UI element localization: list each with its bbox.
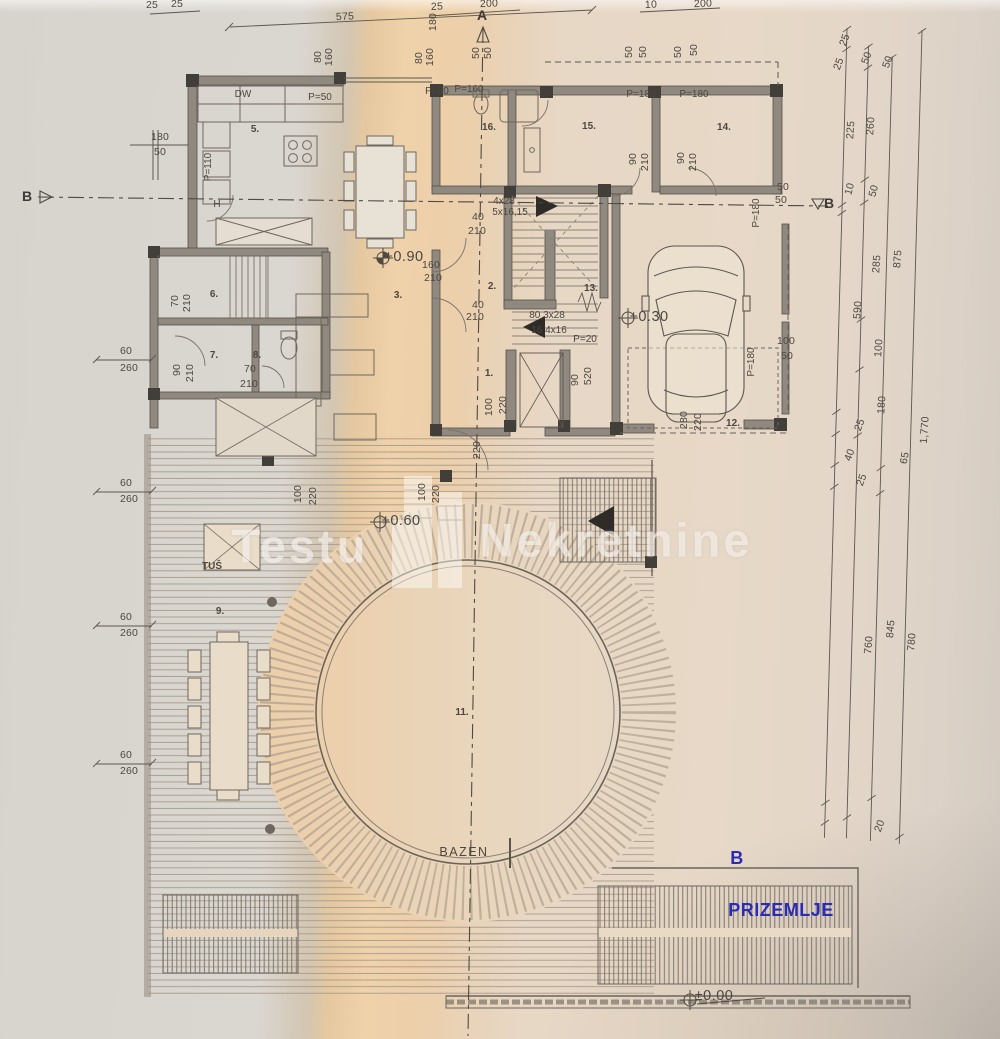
section-marker-b-right: B — [824, 196, 834, 210]
dim-label: 50 — [638, 46, 649, 58]
dim-label: 20 — [873, 819, 887, 834]
room-label: 1. — [485, 369, 493, 379]
dim-label: 70 — [244, 364, 256, 375]
dim-label: 25 — [853, 418, 867, 433]
dim-label: 80 — [414, 52, 425, 64]
dim-label: 90 — [172, 364, 183, 376]
dim-label: 260 — [120, 766, 138, 777]
dim-label: 25 — [855, 473, 869, 488]
room-label: 6. — [210, 290, 218, 300]
dim-label: 100 — [417, 483, 428, 501]
dim-label: 10 — [645, 0, 657, 10]
floorplan-photo: Testu Nekretnine A B B BAZEN B PRIZEMLJE… — [0, 0, 1000, 1039]
dim-label: 210 — [466, 312, 484, 323]
opening-label: P=180 — [679, 90, 708, 100]
dim-label: 220 — [431, 485, 442, 503]
room-label: 8. — [253, 351, 261, 361]
dim-label: 180 — [876, 396, 888, 415]
dim-label: 210 — [640, 153, 651, 171]
room-label: 2. — [488, 282, 496, 292]
watermark-right-word: Nekretnine — [480, 517, 753, 564]
level-label: +0.30 — [629, 310, 668, 325]
opening-label: H — [213, 200, 220, 210]
dim-label: 50 — [777, 182, 789, 193]
floor-title: PRIZEMLJE — [728, 901, 834, 919]
dim-label: 50 — [483, 47, 494, 59]
dim-label: 160 — [422, 260, 440, 271]
dim-label: 100 — [484, 398, 495, 416]
dim-label: 90 — [628, 153, 639, 165]
room-label: 11. — [455, 708, 468, 718]
dim-label: 60 — [120, 478, 132, 489]
pool-label: BAZEN — [439, 846, 488, 859]
dim-label: 210 — [240, 379, 258, 390]
dim-label: 25 — [171, 0, 183, 9]
room-label: 13. — [584, 284, 598, 294]
dim-label: 210 — [688, 153, 699, 171]
room-label: 12. — [726, 419, 740, 429]
dim-label: 220 — [308, 487, 319, 505]
dim-label: 25 — [431, 2, 443, 13]
dim-label: 65 — [899, 451, 911, 465]
dim-label: 160 — [425, 48, 436, 66]
dim-label: 760 — [863, 636, 875, 655]
dim-label: 780 — [906, 633, 918, 652]
section-marker-a: A — [477, 8, 487, 22]
stair-label: 4x28 — [493, 197, 515, 207]
section-marker-b-left: B — [22, 189, 32, 203]
opening-label: P=180 — [626, 90, 655, 100]
opening-label: P=110 — [204, 153, 214, 181]
dim-label: 1,770 — [919, 416, 931, 444]
dim-label: 50 — [689, 44, 700, 56]
dim-label: 220 — [498, 396, 509, 414]
dim-label: 200 — [694, 0, 712, 10]
dim-label: 60 — [120, 612, 132, 623]
dim-label: 590 — [852, 301, 864, 320]
dim-label: 50 — [471, 47, 482, 59]
level-label: +0.90 — [384, 250, 423, 265]
dim-label: 25 — [838, 33, 852, 48]
room-label: TUŠ — [202, 562, 222, 572]
stair-label: 5x16,15 — [492, 208, 528, 218]
room-label: 15. — [582, 122, 596, 132]
dim-label: 210 — [468, 226, 486, 237]
dim-label: 875 — [892, 250, 904, 269]
dim-label: 90 — [570, 374, 581, 386]
dim-label: 25 — [832, 57, 846, 72]
dim-label: 200 — [480, 0, 498, 10]
label-layer: Testu Nekretnine A B B BAZEN B PRIZEMLJE… — [0, 0, 1000, 1039]
dim-label: 280 — [679, 411, 690, 429]
dim-label: 220 — [693, 413, 704, 431]
opening-label: DW — [235, 90, 252, 100]
room-label: 14. — [717, 123, 731, 133]
dim-label: 25 — [146, 0, 158, 10]
room-label: 7. — [210, 351, 218, 361]
dim-label: 40 — [843, 448, 857, 463]
opening-label: P=180 — [752, 198, 762, 227]
dim-label: 210 — [182, 294, 193, 312]
dim-label: 575 — [336, 11, 354, 22]
dim-label: 50 — [881, 55, 895, 70]
opening-label: P=50 — [425, 87, 449, 97]
dim-label: 50 — [673, 46, 684, 58]
level-label: ±0.00 — [695, 989, 734, 1004]
dim-label: 50 — [624, 46, 635, 58]
dim-label: 80 — [313, 51, 324, 63]
dim-label: 285 — [871, 255, 883, 274]
dim-label: 260 — [120, 363, 138, 374]
level-label: +0.60 — [381, 514, 420, 529]
room-label: 5. — [251, 125, 259, 135]
dim-label: 225 — [845, 121, 857, 140]
dim-label: 10 — [843, 182, 856, 196]
dim-label: 520 — [583, 367, 594, 385]
dim-label: 50 — [860, 51, 874, 66]
dim-label: 210 — [424, 273, 442, 284]
dim-label: 100 — [873, 339, 885, 358]
opening-label: P=50 — [308, 93, 332, 103]
dim-label: 90 — [676, 152, 687, 164]
room-label: 3. — [394, 291, 402, 301]
room-label: 16. — [482, 123, 496, 133]
dim-label: 160 — [324, 48, 335, 66]
opening-label: P=160 — [454, 85, 483, 95]
stair-label: 16 4x16 — [531, 326, 567, 336]
dim-label: 260 — [120, 494, 138, 505]
dim-label: 50 — [781, 351, 793, 362]
dim-label: 180 — [428, 13, 439, 31]
dim-label: 50 — [154, 147, 166, 158]
dim-label: 40 — [472, 300, 484, 311]
dim-label: 100 — [777, 336, 795, 347]
dim-label: 180 — [151, 132, 169, 143]
opening-label: P=20 — [573, 335, 597, 345]
dim-label: 60 — [120, 346, 132, 357]
watermark-left-word: Testu — [232, 523, 369, 570]
dim-label: 50 — [775, 195, 787, 206]
dim-label: 100 — [293, 485, 304, 503]
opening-label: P=180 — [747, 347, 757, 376]
dim-label: 60 — [120, 750, 132, 761]
stair-label: 80 3x28 — [529, 311, 565, 321]
dim-label: 220 — [472, 441, 483, 459]
dim-label: 260 — [865, 117, 877, 136]
dim-label: 70 — [170, 295, 181, 307]
dim-label: 50 — [867, 184, 880, 198]
room-label: 9. — [216, 607, 224, 617]
dim-label: 210 — [185, 364, 196, 382]
blue-section-b: B — [730, 849, 744, 867]
dim-label: 260 — [120, 628, 138, 639]
dim-label: 845 — [885, 620, 897, 639]
dim-label: 40 — [472, 212, 484, 223]
